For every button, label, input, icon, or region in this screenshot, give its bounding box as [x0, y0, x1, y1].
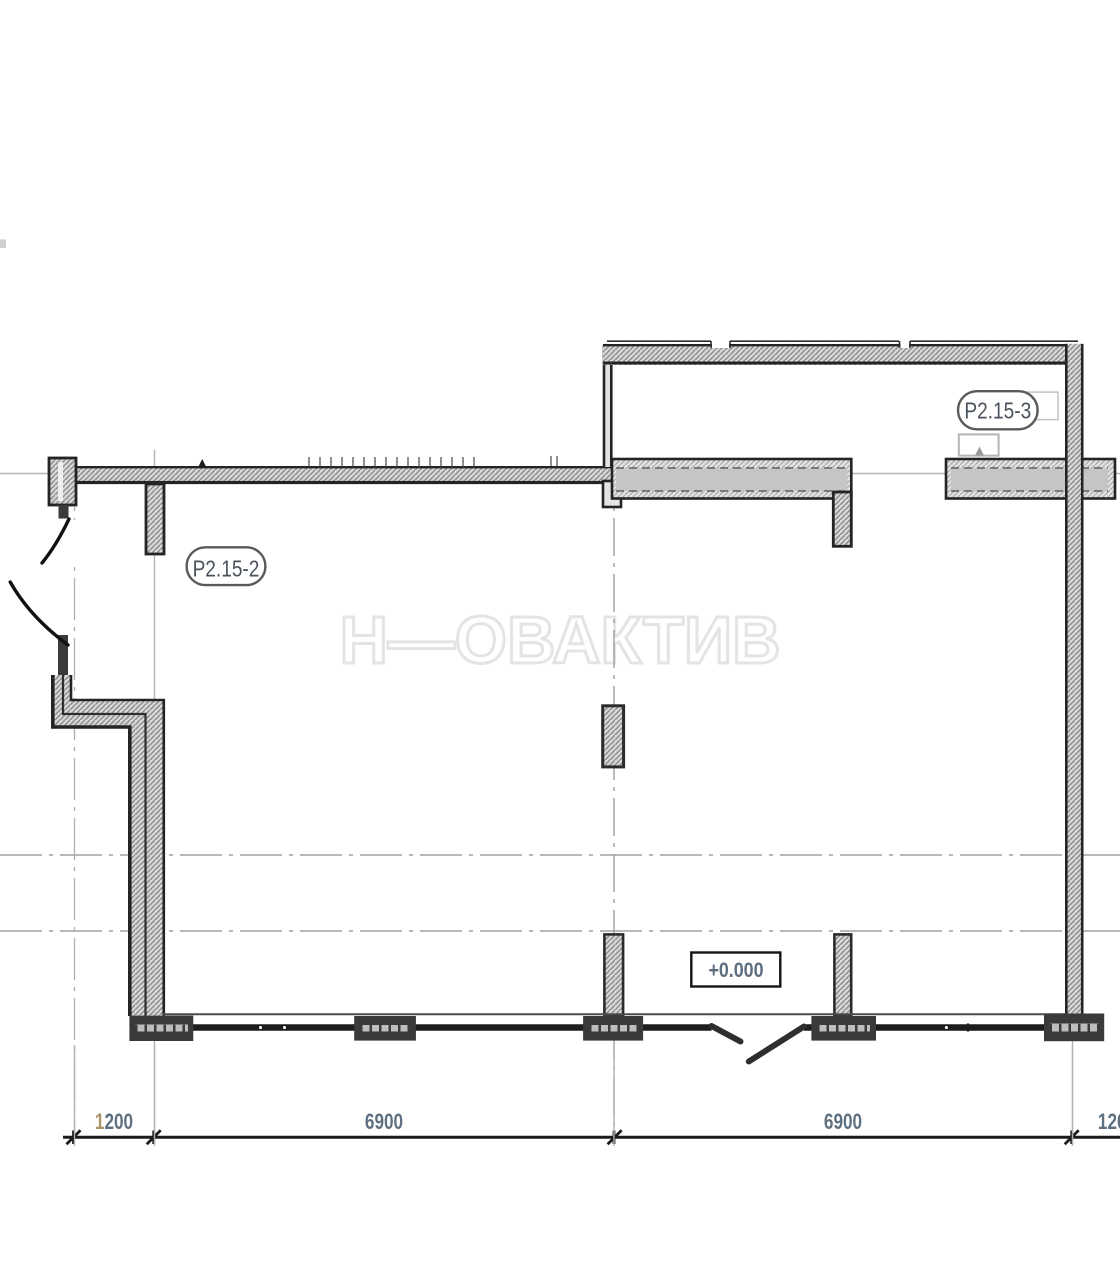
svg-text:Н—ОВАКТИВ: Н—ОВАКТИВ: [340, 603, 781, 678]
svg-text:6900: 6900: [365, 1110, 403, 1135]
svg-text:Р2.15-2: Р2.15-2: [193, 557, 260, 582]
svg-text:1200: 1200: [95, 1110, 133, 1135]
svg-text:+0.000: +0.000: [708, 959, 763, 983]
svg-text:Р2.15-3: Р2.15-3: [964, 399, 1031, 424]
svg-text:1200: 1200: [1098, 1110, 1120, 1135]
svg-text:6900: 6900: [824, 1110, 862, 1135]
